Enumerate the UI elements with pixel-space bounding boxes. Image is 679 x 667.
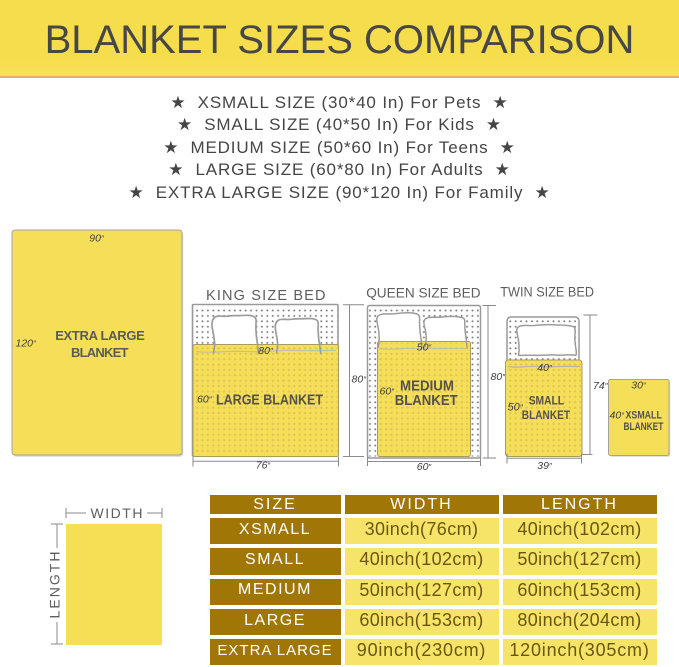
svg-text:74″: 74″ (593, 380, 609, 392)
svg-text:30″: 30″ (631, 380, 647, 392)
svg-text:XSMALL: XSMALL (626, 409, 663, 421)
svg-text:QUEEN SIZE BED: QUEEN SIZE BED (366, 285, 480, 301)
svg-text:39″: 39″ (537, 460, 553, 472)
svg-text:60″: 60″ (380, 386, 396, 398)
svg-text:SMALL: SMALL (529, 393, 564, 407)
svg-text:BLANKET: BLANKET (71, 345, 129, 360)
svg-text:LARGE BLANKET: LARGE BLANKET (216, 393, 323, 409)
svg-text:MEDIUM: MEDIUM (400, 378, 454, 394)
svg-text:TWIN SIZE BED: TWIN SIZE BED (500, 285, 594, 300)
svg-text:60″: 60″ (197, 394, 213, 406)
svg-text:EXTRA LARGE: EXTRA LARGE (55, 328, 145, 343)
svg-text:WIDTH: WIDTH (91, 505, 143, 521)
svg-text:76″: 76″ (256, 460, 272, 472)
svg-text:BLANKET: BLANKET (395, 393, 458, 409)
svg-text:50″: 50″ (417, 342, 433, 354)
svg-text:90″: 90″ (89, 233, 105, 245)
svg-text:80″: 80″ (352, 374, 368, 386)
svg-text:40″: 40″ (537, 362, 553, 374)
svg-text:60″: 60″ (417, 461, 433, 473)
svg-text:BLANKET: BLANKET (522, 408, 571, 422)
svg-text:BLANKET: BLANKET (623, 421, 663, 433)
svg-text:80″: 80″ (258, 345, 274, 357)
svg-text:80″: 80″ (491, 371, 507, 383)
svg-text:40″: 40″ (610, 410, 626, 422)
svg-text:KING SIZE BED: KING SIZE BED (206, 288, 326, 304)
svg-text:LENGTH: LENGTH (47, 552, 63, 619)
svg-text:120″: 120″ (16, 338, 38, 350)
